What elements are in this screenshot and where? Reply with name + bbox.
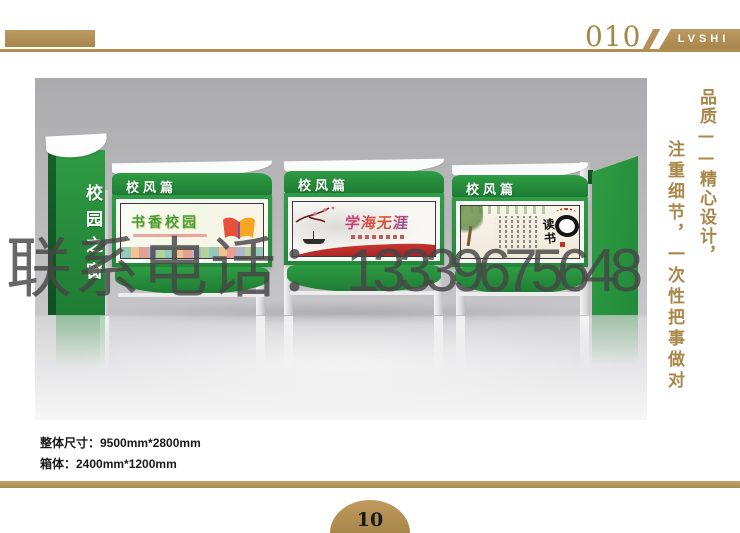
page-number-dome: 10 [330,500,410,533]
panel-header-label: 校风篇 [298,175,349,194]
red-arc-decoration [556,208,576,217]
panel-header-label: 校风篇 [466,179,517,198]
slogan-column-left: 注重细节，一次性把事做对 [662,140,687,412]
plum-branch-icon [295,204,349,226]
watermark-number: 13339675648 [346,237,636,304]
slogan-column-right: 品质——精心设计， [694,88,719,273]
top-left-tan-bar [5,30,95,47]
overall-size-line: 整体尺寸：9500mm*2800mm [40,433,201,454]
panel-header-label: 校风篇 [126,177,177,196]
brand-badge: LVSHI [659,29,740,49]
footer-tan-bar [0,481,740,488]
dimension-specs: 整体尺寸：9500mm*2800mm 箱体：2400mm*1200mm [40,433,201,475]
slant-divider [643,29,661,49]
page-code: 010 [585,23,645,51]
watermark-phone: 联系电话：13339675648 [6,230,636,325]
poster-title: 书香校园 [131,212,199,232]
box-size-line: 箱体：2400mm*1200mm [40,454,201,475]
floor-reflection-glow [65,318,625,408]
brand-label: LVSHI [670,33,730,45]
page-number: 10 [357,509,383,533]
watermark-label: 联系电话： [6,231,346,305]
catalog-page: 010 LVSHI 校园之窗 校风篇 [0,0,740,533]
